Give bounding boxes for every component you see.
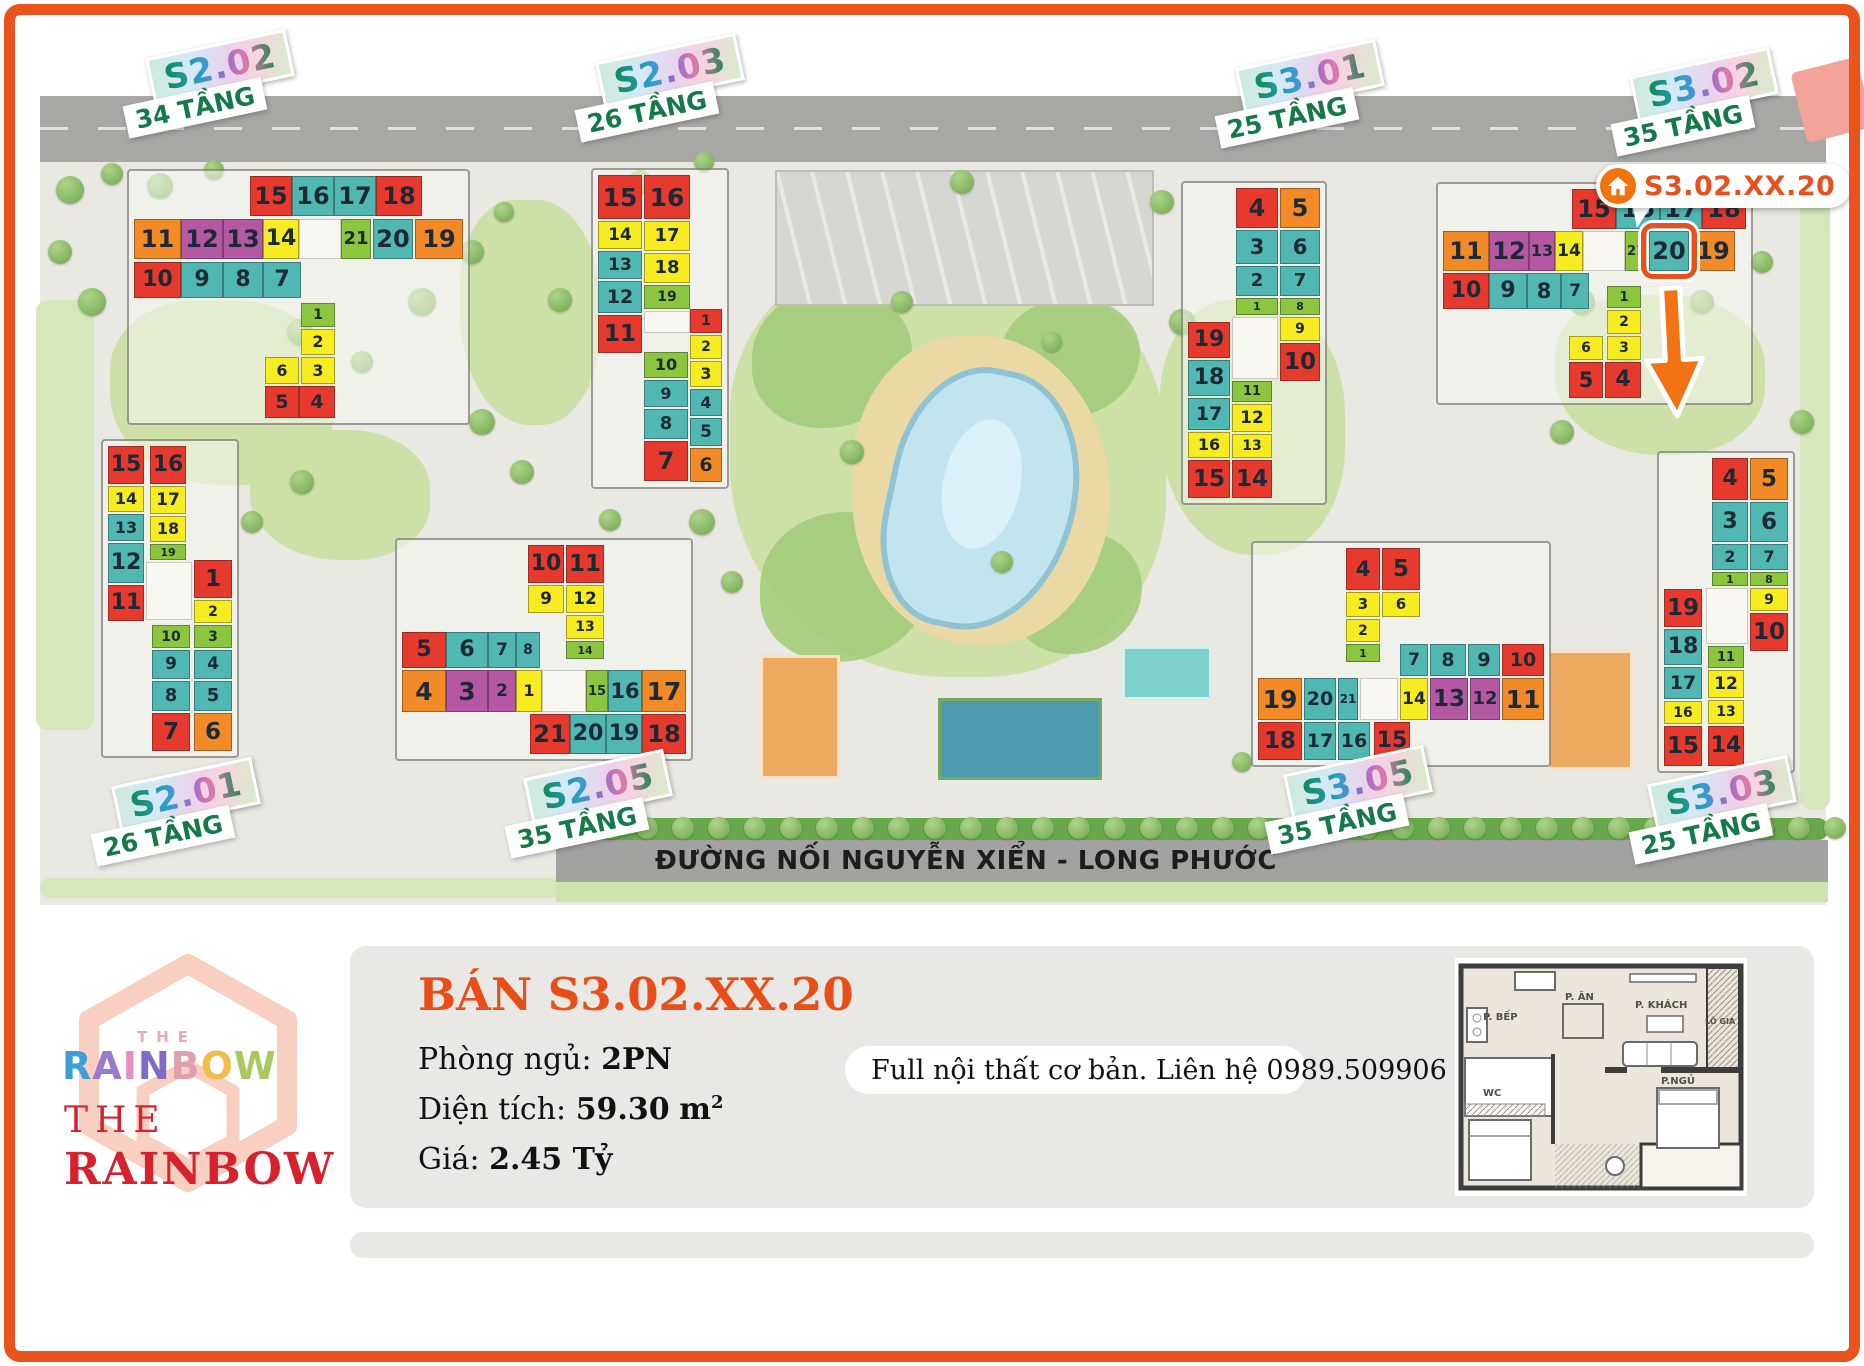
core-S3.03 <box>1706 588 1748 644</box>
hedge-tree-icon <box>1608 817 1630 839</box>
unit-S2.02-9[interactable]: 9 <box>181 262 223 298</box>
area-value: 59.30 <box>576 1092 670 1127</box>
tree-icon <box>548 288 572 312</box>
unit-S3.01-19[interactable]: 19 <box>1188 322 1230 358</box>
tree-icon <box>1790 410 1814 434</box>
bedrooms-row: Phòng ngủ: 2PN <box>418 1042 672 1077</box>
unit-S2.03-1[interactable]: 1 <box>690 309 722 333</box>
unit-S2.03-6[interactable]: 6 <box>690 448 722 482</box>
home-icon <box>1600 168 1636 204</box>
unit-S3.03-6[interactable]: 6 <box>1750 502 1788 542</box>
unit-S2.01-7[interactable]: 7 <box>152 713 190 751</box>
project-logo: THE RAINBOW THE RAINBOW <box>58 948 328 1238</box>
unit-S3.03-17[interactable]: 17 <box>1664 667 1702 699</box>
unit-S2.03-15[interactable]: 15 <box>598 175 642 219</box>
listing-panel: BÁN S3.02.XX.20 Phòng ngủ: 2PN Diện tích… <box>350 946 1814 1208</box>
unit-S3.01-9[interactable]: 9 <box>1280 317 1320 341</box>
unit-S2.02-7[interactable]: 7 <box>263 262 301 298</box>
unit-S2.03-9[interactable]: 9 <box>644 380 688 407</box>
unit-S3.02-10[interactable]: 10 <box>1443 273 1489 309</box>
green-strip <box>36 300 94 730</box>
unit-S3.03-11[interactable]: 11 <box>1708 646 1744 668</box>
unit-S3.01-2[interactable]: 2 <box>1236 266 1278 296</box>
unit-S2.02-19[interactable]: 19 <box>415 219 463 259</box>
unit-S3.05-21[interactable]: 21 <box>1338 678 1358 720</box>
unit-S2.03-8[interactable]: 8 <box>644 409 688 439</box>
unit-S2.02-21[interactable]: 21 <box>341 219 371 259</box>
unit-S3.05-12[interactable]: 12 <box>1470 678 1500 720</box>
unit-S3.01-13[interactable]: 13 <box>1232 434 1272 458</box>
logo-letter: W <box>234 1044 277 1088</box>
floorplan-label-dining: P. ĂN <box>1565 990 1594 1003</box>
unit-tag-label: S3.02.XX.20 <box>1644 171 1835 202</box>
unit-S2.05-13[interactable]: 13 <box>566 615 604 639</box>
unit-S2.02-12[interactable]: 12 <box>181 219 223 259</box>
unit-S3.03-13[interactable]: 13 <box>1708 700 1744 724</box>
tree-icon <box>241 511 263 533</box>
unit-S2.02-18[interactable]: 18 <box>376 176 422 216</box>
top-road <box>40 96 1826 162</box>
unit-S3.05-19[interactable]: 19 <box>1258 678 1302 720</box>
green-strip <box>556 882 1828 902</box>
unit-S2.02-3[interactable]: 3 <box>301 357 335 384</box>
tree-icon <box>1232 752 1252 772</box>
unit-S2.01-9[interactable]: 9 <box>152 650 190 679</box>
tree-icon <box>494 202 514 222</box>
unit-S2.02-6[interactable]: 6 <box>265 357 299 384</box>
unit-S2.03-16[interactable]: 16 <box>644 175 690 219</box>
logo-letter: R <box>62 1044 92 1088</box>
price-label: Giá: <box>418 1142 480 1177</box>
hedge-tree-icon <box>1176 817 1198 839</box>
page-root: ĐƯỜNG NỐI NGUYỄN XIỂN - LONG PHƯỚC S3.02… <box>0 0 1864 1366</box>
unit-S2.05-2[interactable]: 2 <box>488 670 516 712</box>
unit-S2.05-6[interactable]: 6 <box>446 632 488 668</box>
unit-S3.03-4[interactable]: 4 <box>1712 458 1748 500</box>
basketball-court <box>760 655 840 779</box>
park-area <box>460 200 600 425</box>
unit-S2.01-8[interactable]: 8 <box>152 681 190 711</box>
tree-icon <box>290 470 314 494</box>
area-label: Diện tích: <box>418 1092 566 1127</box>
unit-S2.05-7[interactable]: 7 <box>488 632 516 668</box>
area-unit: m2 <box>679 1092 723 1127</box>
unit-S2.01-1[interactable]: 1 <box>194 560 232 598</box>
hedge-tree-icon <box>1500 817 1522 839</box>
hedge-tree-icon <box>852 817 874 839</box>
hedge-tree-icon <box>780 817 802 839</box>
unit-S2.05-16[interactable]: 16 <box>608 670 642 712</box>
unit-S3.03-15[interactable]: 15 <box>1664 726 1702 766</box>
unit-tag[interactable]: S3.02.XX.20 <box>1596 164 1851 208</box>
unit-S2.03-7[interactable]: 7 <box>644 441 688 481</box>
unit-S2.01-12[interactable]: 12 <box>108 543 144 583</box>
logo-letter: O <box>201 1044 234 1088</box>
unit-S3.03-9[interactable]: 9 <box>1750 588 1788 611</box>
unit-S3.02-12[interactable]: 12 <box>1489 231 1529 271</box>
tree-icon <box>1550 420 1574 444</box>
hedge-tree-icon <box>1032 817 1054 839</box>
tree-icon <box>599 509 621 531</box>
unit-S3.05-13[interactable]: 13 <box>1430 678 1468 720</box>
area-row: Diện tích: 59.30 m2 <box>418 1092 723 1127</box>
unit-S2.05-4[interactable]: 4 <box>402 670 446 712</box>
unit-S2.02-14[interactable]: 14 <box>263 219 299 259</box>
hedge-tree-icon <box>744 817 766 839</box>
unit-S3.03-7[interactable]: 7 <box>1750 544 1788 570</box>
road-centerline <box>40 127 1826 130</box>
unit-S3.01-18[interactable]: 18 <box>1188 360 1230 396</box>
unit-S2.05-12[interactable]: 12 <box>566 585 604 613</box>
unit-S2.02-11[interactable]: 11 <box>134 219 181 259</box>
tree-icon <box>1751 251 1773 273</box>
unit-S3.03-3[interactable]: 3 <box>1712 502 1748 542</box>
unit-S2.05-1[interactable]: 1 <box>516 670 542 712</box>
unit-S2.03-17[interactable]: 17 <box>644 221 690 251</box>
unit-S3.02-19[interactable]: 19 <box>1691 231 1735 271</box>
hedge-tree-icon <box>960 817 982 839</box>
unit-S2.05-15[interactable]: 15 <box>586 670 608 712</box>
unit-S3.02-9[interactable]: 9 <box>1489 273 1527 309</box>
unit-S3.02-14[interactable]: 14 <box>1555 231 1583 271</box>
unit-S3.01-10[interactable]: 10 <box>1280 343 1320 381</box>
hedge-tree-icon <box>996 817 1018 839</box>
unit-S2.02-13[interactable]: 13 <box>223 219 263 259</box>
selection-arrow-icon <box>1635 284 1712 421</box>
unit-S2.03-13[interactable]: 13 <box>598 251 642 279</box>
core-S3.05 <box>1360 678 1398 720</box>
hedge-tree-icon <box>1788 817 1810 839</box>
hedge-tree-icon <box>1104 817 1126 839</box>
unit-S3.01-1[interactable]: 1 <box>1236 298 1278 315</box>
unit-S3.01-11[interactable]: 11 <box>1232 381 1272 402</box>
floorplan-label-wc: WC <box>1483 1088 1501 1099</box>
unit-S2.05-20[interactable]: 20 <box>570 714 606 754</box>
selected-unit-ring <box>1641 223 1697 279</box>
unit-S3.05-6[interactable]: 6 <box>1382 592 1420 617</box>
tree-icon <box>840 440 864 464</box>
unit-S3.05-8[interactable]: 8 <box>1430 644 1466 676</box>
unit-S3.05-18[interactable]: 18 <box>1258 722 1302 760</box>
unit-S2.05-14[interactable]: 14 <box>566 641 604 659</box>
unit-S3.01-4[interactable]: 4 <box>1236 188 1278 228</box>
hedge-tree-icon <box>816 817 838 839</box>
tree-icon <box>48 240 72 264</box>
floorplan-label-loggia: LÔ GIA <box>1705 1015 1736 1026</box>
unit-S3.05-3[interactable]: 3 <box>1346 592 1380 617</box>
core-S2.01 <box>146 562 192 620</box>
unit-S3.05-1[interactable]: 1 <box>1346 644 1380 662</box>
tree-icon <box>469 409 495 435</box>
unit-S3.02-13[interactable]: 13 <box>1529 231 1555 271</box>
hedge-tree-icon <box>1464 817 1486 839</box>
tree-icon <box>991 551 1013 573</box>
logo-letter: B <box>171 1044 201 1088</box>
floorplan-drawing: P. BẾP P. ĂN P. KHÁCH LÔ GIA WC P.NGỦ <box>1455 958 1747 1196</box>
logo-rainbow-gradient: RAINBOW <box>62 1044 277 1088</box>
bedrooms-value: 2PN <box>601 1042 672 1077</box>
unit-S3.03-16[interactable]: 16 <box>1664 701 1702 724</box>
logo-letter: I <box>123 1044 138 1088</box>
unit-S2.01-11[interactable]: 11 <box>108 585 144 621</box>
unit-S2.01-14[interactable]: 14 <box>108 486 144 512</box>
hedge-tree-icon <box>924 817 946 839</box>
unit-S2.03-12[interactable]: 12 <box>598 281 642 313</box>
hedge-tree-icon <box>1428 817 1450 839</box>
unit-S3.05-9[interactable]: 9 <box>1468 644 1500 676</box>
unit-S3.03-8[interactable]: 8 <box>1750 572 1788 586</box>
unit-S2.02-5[interactable]: 5 <box>265 386 299 418</box>
unit-S2.05-11[interactable]: 11 <box>566 545 604 583</box>
unit-S2.02-10[interactable]: 10 <box>134 262 181 298</box>
unit-S2.02-15[interactable]: 15 <box>250 176 292 216</box>
green-strip <box>40 878 560 898</box>
unit-S2.01-15[interactable]: 15 <box>108 446 144 484</box>
hedge-tree-icon <box>1536 817 1558 839</box>
unit-S2.01-3[interactable]: 3 <box>194 625 232 648</box>
unit-S2.05-8[interactable]: 8 <box>516 632 540 668</box>
core-S2.02 <box>299 219 341 259</box>
unit-S3.02-5[interactable]: 5 <box>1569 362 1603 398</box>
unit-S2.02-8[interactable]: 8 <box>223 262 263 298</box>
unit-S2.03-18[interactable]: 18 <box>644 253 690 283</box>
tree-icon <box>891 291 913 313</box>
unit-S2.03-11[interactable]: 11 <box>598 315 642 353</box>
floorplan-label-bedroom: P.NGỦ <box>1661 1073 1695 1087</box>
tree-icon <box>950 170 974 194</box>
unit-S2.03-19[interactable]: 19 <box>644 285 690 309</box>
unit-S2.01-18[interactable]: 18 <box>150 516 186 542</box>
hedge-tree-icon <box>1572 817 1594 839</box>
unit-S3.01-14[interactable]: 14 <box>1232 460 1272 498</box>
core-S2.03 <box>644 311 690 333</box>
unit-S3.01-6[interactable]: 6 <box>1280 230 1320 264</box>
hedge-tree-icon <box>1824 817 1846 839</box>
unit-S2.05-5[interactable]: 5 <box>402 632 446 668</box>
unit-S3.02-6[interactable]: 6 <box>1569 336 1603 360</box>
unit-S3.05-4[interactable]: 4 <box>1346 548 1380 590</box>
unit-S3.02-8[interactable]: 8 <box>1527 273 1561 309</box>
unit-S3.03-19[interactable]: 19 <box>1664 589 1702 627</box>
unit-S3.03-10[interactable]: 10 <box>1750 613 1788 651</box>
unit-S3.05-17[interactable]: 17 <box>1304 722 1336 760</box>
unit-S2.03-4[interactable]: 4 <box>690 389 722 416</box>
unit-S2.03-3[interactable]: 3 <box>690 361 722 387</box>
unit-S3.02-3[interactable]: 3 <box>1607 336 1641 360</box>
unit-S2.02-2[interactable]: 2 <box>301 329 335 355</box>
unit-S3.05-20[interactable]: 20 <box>1304 678 1336 720</box>
tree-icon <box>510 460 534 484</box>
floorplan-thumbnail[interactable]: P. BẾP P. ĂN P. KHÁCH LÔ GIA WC P.NGỦ <box>1455 958 1747 1196</box>
unit-S2.05-19[interactable]: 19 <box>606 714 642 754</box>
logo-rainbow: RAINBOW <box>64 1144 335 1195</box>
unit-S3.05-5[interactable]: 5 <box>1382 548 1420 590</box>
unit-S3.05-11[interactable]: 11 <box>1502 678 1544 720</box>
tree-icon <box>101 163 123 185</box>
unit-S2.03-10[interactable]: 10 <box>644 352 688 378</box>
unit-S2.05-10[interactable]: 10 <box>528 545 564 583</box>
unit-S3.05-16[interactable]: 16 <box>1338 722 1370 760</box>
unit-S2.02-1[interactable]: 1 <box>301 303 335 327</box>
unit-S3.01-17[interactable]: 17 <box>1188 398 1230 430</box>
core-S3.02 <box>1583 231 1625 271</box>
green-strip <box>1800 170 1830 810</box>
unit-S2.05-18[interactable]: 18 <box>642 714 686 754</box>
hedge-tree-icon <box>708 817 730 839</box>
price-value: 2.45 Tỷ <box>489 1142 612 1177</box>
unit-S3.05-14[interactable]: 14 <box>1400 678 1428 720</box>
unit-S2.03-5[interactable]: 5 <box>690 418 722 446</box>
unit-S3.03-1[interactable]: 1 <box>1712 572 1748 586</box>
unit-S2.02-4[interactable]: 4 <box>299 386 335 418</box>
road-name-label: ĐƯỜNG NỐI NGUYỄN XIỂN - LONG PHƯỚC <box>655 846 1175 876</box>
unit-S3.02-4[interactable]: 4 <box>1605 362 1641 398</box>
unit-S2.02-16[interactable]: 16 <box>292 176 334 216</box>
logo-the: THE <box>64 1100 167 1141</box>
tree-icon <box>1150 190 1174 214</box>
unit-S2.01-10[interactable]: 10 <box>152 625 190 648</box>
price-row: Giá: 2.45 Tỷ <box>418 1142 612 1177</box>
hedge-tree-icon <box>888 817 910 839</box>
bedrooms-label: Phòng ngủ: <box>418 1042 592 1077</box>
unit-S3.03-14[interactable]: 14 <box>1708 726 1744 766</box>
core-S2.05 <box>542 670 586 712</box>
unit-S3.03-18[interactable]: 18 <box>1664 629 1702 665</box>
unit-S3.01-16[interactable]: 16 <box>1188 432 1230 458</box>
tennis-court <box>938 698 1102 780</box>
unit-S2.01-16[interactable]: 16 <box>150 446 186 484</box>
unit-S2.05-3[interactable]: 3 <box>446 670 488 712</box>
unit-S3.01-15[interactable]: 15 <box>1188 460 1230 498</box>
unit-S2.01-17[interactable]: 17 <box>150 486 186 514</box>
unit-S3.01-8[interactable]: 8 <box>1280 298 1320 315</box>
next-card-edge <box>350 1232 1814 1258</box>
tree-icon <box>56 176 84 204</box>
basketball-court <box>1547 650 1633 770</box>
logo-letter: N <box>138 1044 171 1088</box>
unit-S3.01-12[interactable]: 12 <box>1232 404 1272 432</box>
tree-icon <box>689 509 715 535</box>
listing-title: BÁN S3.02.XX.20 <box>418 968 854 1021</box>
unit-S3.01-7[interactable]: 7 <box>1280 266 1320 296</box>
unit-S2.01-19[interactable]: 19 <box>150 544 186 560</box>
tree-icon <box>78 288 106 316</box>
unit-S3.02-7[interactable]: 7 <box>1561 273 1589 309</box>
unit-S2.03-2[interactable]: 2 <box>690 335 722 359</box>
hedge-tree-icon <box>1212 817 1234 839</box>
hedge-tree-icon <box>672 817 694 839</box>
unit-S3.02-11[interactable]: 11 <box>1443 231 1489 271</box>
unit-S2.01-13[interactable]: 13 <box>108 514 144 541</box>
tree-icon <box>1042 332 1062 352</box>
unit-S2.05-9[interactable]: 9 <box>528 585 564 613</box>
unit-S2.05-21[interactable]: 21 <box>530 714 570 754</box>
unit-S2.02-17[interactable]: 17 <box>334 176 376 216</box>
logo-letter: A <box>92 1044 122 1088</box>
unit-S2.01-2[interactable]: 2 <box>194 600 232 623</box>
splash-pool <box>1122 646 1212 700</box>
core-S3.01 <box>1232 317 1278 379</box>
unit-S2.05-17[interactable]: 17 <box>642 670 686 712</box>
unit-S3.05-10[interactable]: 10 <box>1502 644 1544 676</box>
unit-S2.01-4[interactable]: 4 <box>194 650 232 679</box>
unit-S3.03-12[interactable]: 12 <box>1708 670 1744 698</box>
unit-S3.01-5[interactable]: 5 <box>1280 188 1320 228</box>
hedge-tree-icon <box>1068 817 1090 839</box>
unit-S3.05-7[interactable]: 7 <box>1400 644 1428 676</box>
unit-S3.05-2[interactable]: 2 <box>1346 619 1380 642</box>
unit-S3.01-3[interactable]: 3 <box>1236 230 1278 264</box>
unit-S2.01-6[interactable]: 6 <box>194 713 232 751</box>
unit-S3.03-5[interactable]: 5 <box>1750 458 1788 500</box>
unit-S2.01-5[interactable]: 5 <box>194 681 232 711</box>
floorplan-label-living: P. KHÁCH <box>1635 998 1687 1011</box>
unit-S3.03-2[interactable]: 2 <box>1712 544 1748 570</box>
hedge-tree-icon <box>1140 817 1162 839</box>
unit-S2.02-20[interactable]: 20 <box>373 219 413 259</box>
tree-icon <box>721 571 743 593</box>
contact-note: Full nội thất cơ bản. Liên hệ 0989.50990… <box>845 1046 1307 1094</box>
unit-S2.03-14[interactable]: 14 <box>598 221 642 249</box>
